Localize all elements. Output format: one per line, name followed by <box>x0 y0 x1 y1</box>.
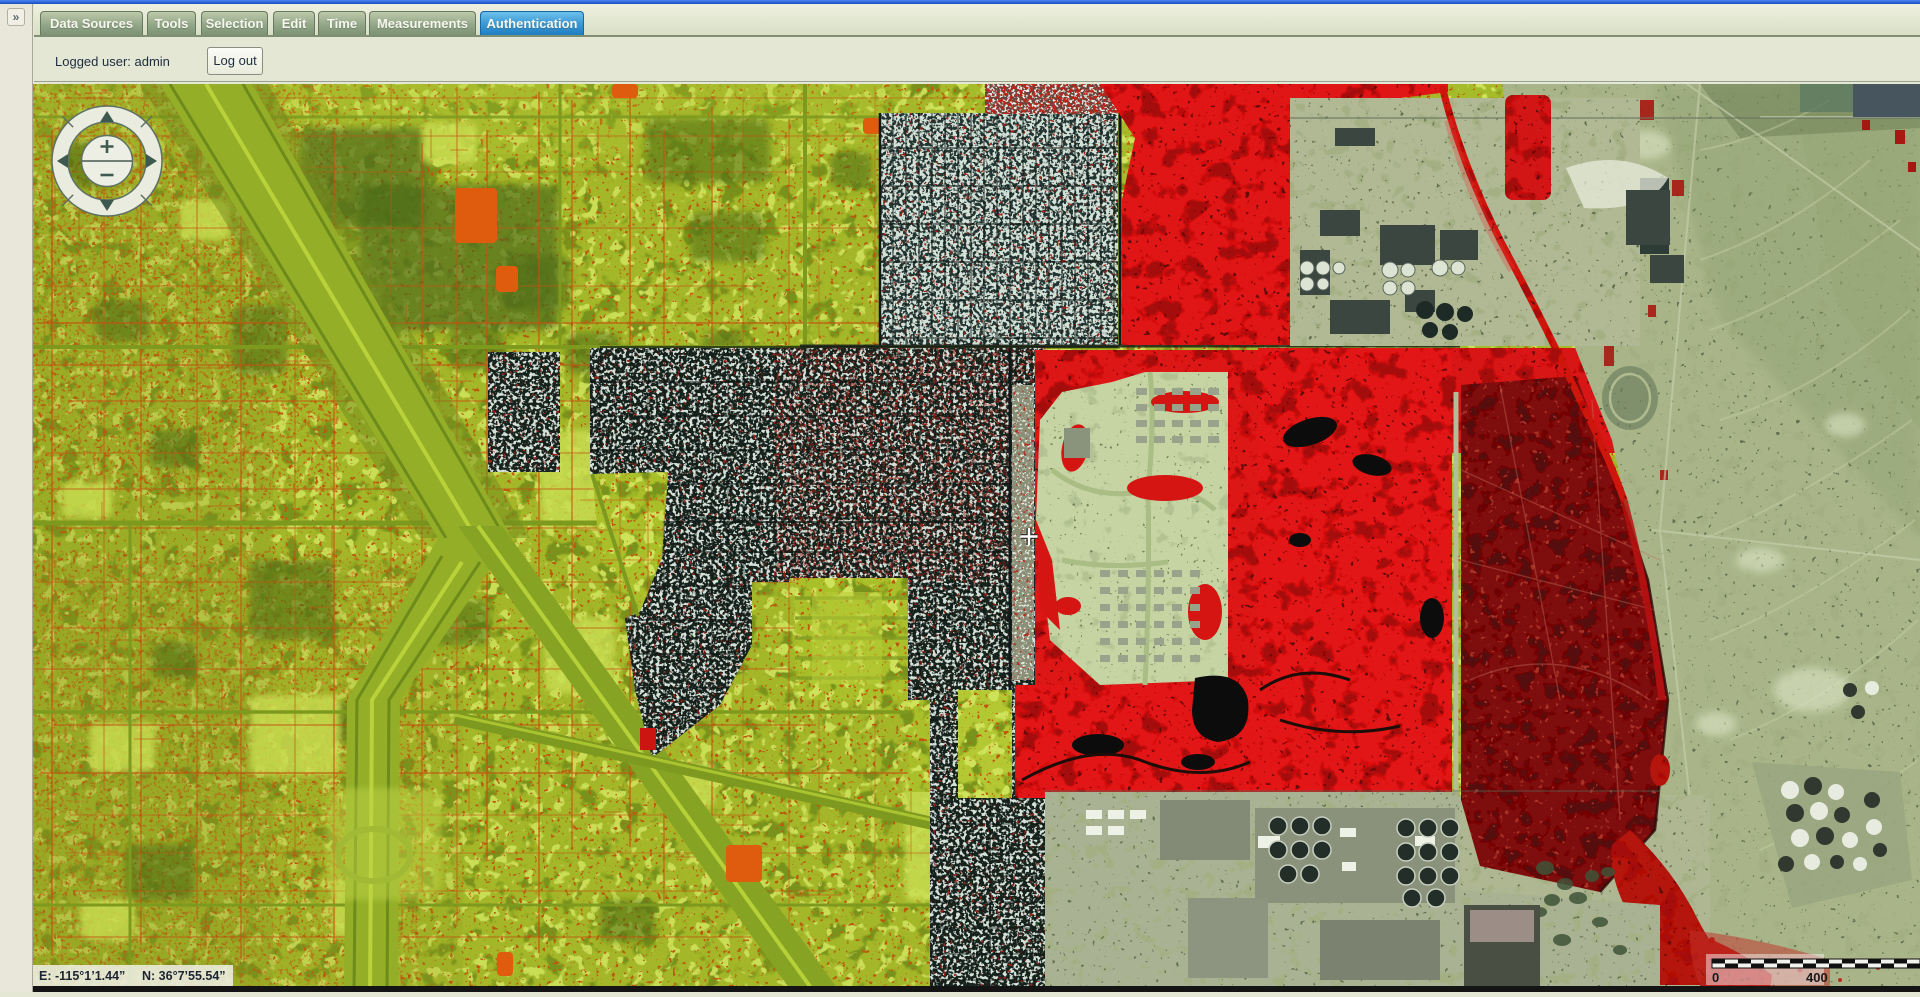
svg-text:0: 0 <box>1712 970 1719 985</box>
svg-text:N: 36°7’55.54”: N: 36°7’55.54” <box>142 969 226 983</box>
svg-text:E: -115°1’1.44”: E: -115°1’1.44” <box>39 969 125 983</box>
svg-text:400: 400 <box>1806 970 1828 985</box>
